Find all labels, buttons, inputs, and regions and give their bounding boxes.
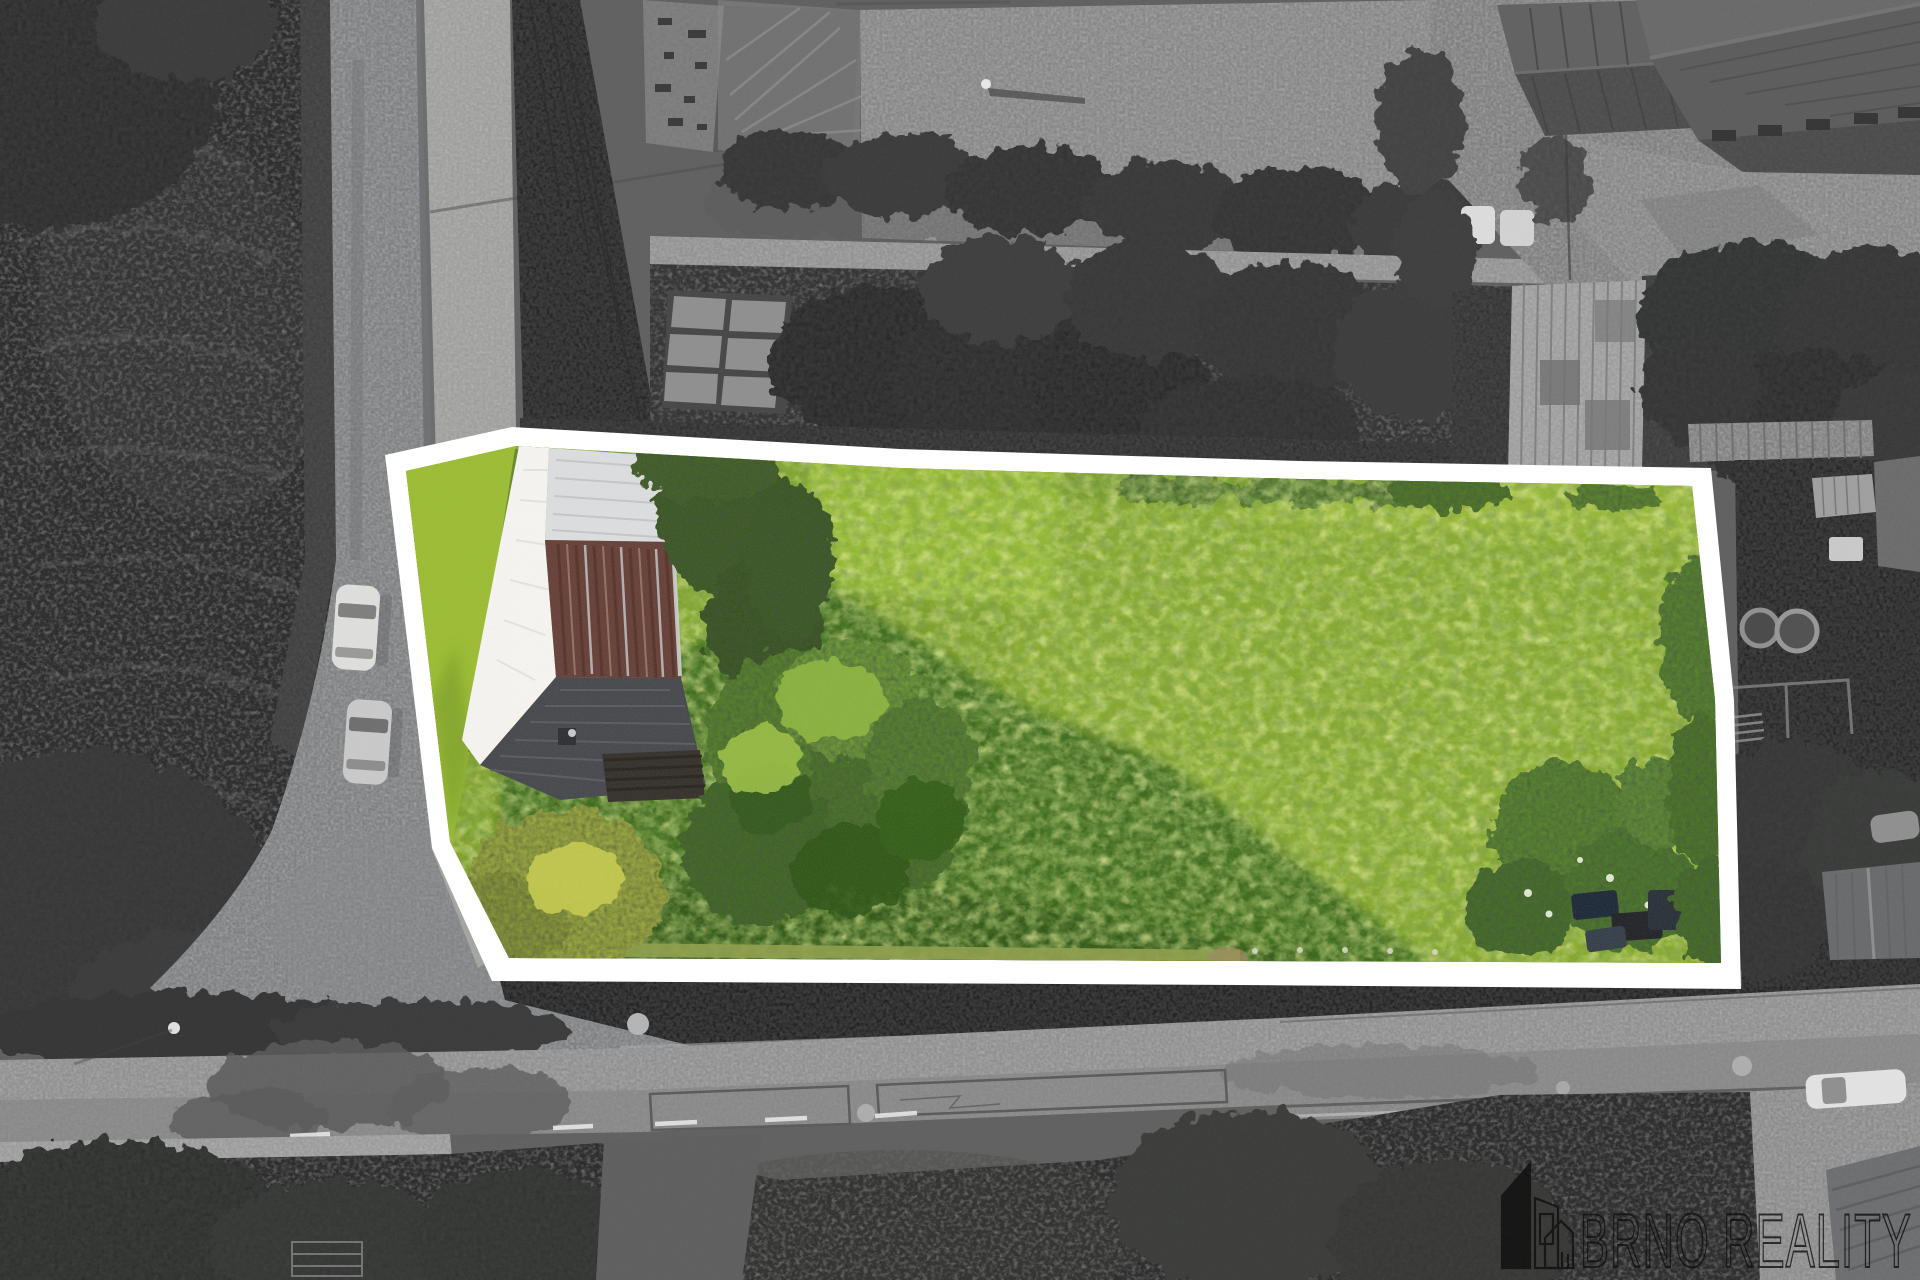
svg-text:BRNO REALITY: BRNO REALITY bbox=[1580, 1199, 1912, 1280]
